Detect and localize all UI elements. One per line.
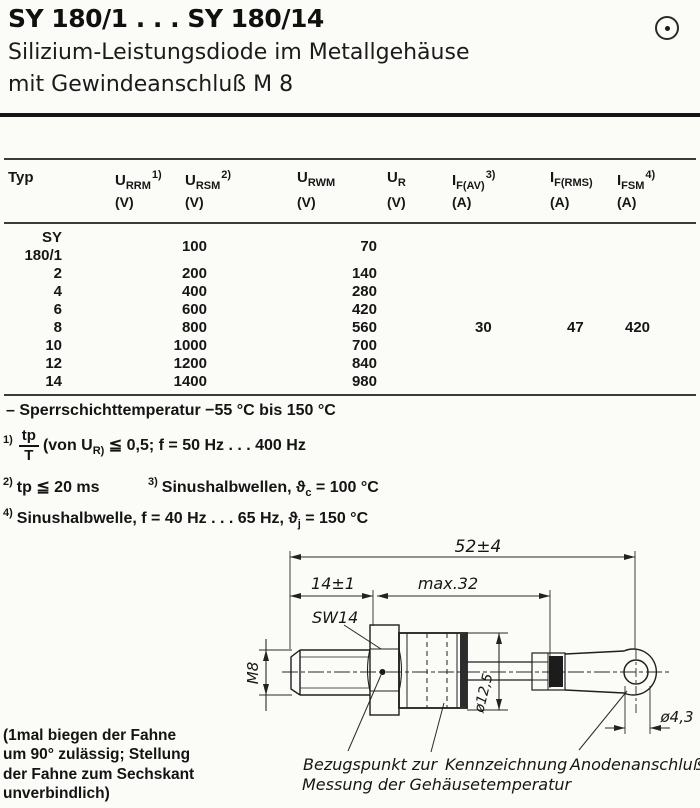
table-header: Typ URRM1) URSM2) URWM UR IF(AV)3) IF(RM… bbox=[4, 159, 696, 223]
cell-ifrms: 47 bbox=[520, 319, 595, 337]
cell-urwm: 280 bbox=[255, 283, 425, 301]
cell-typ: 14 bbox=[4, 373, 110, 395]
footnote-2: 2)tp ≦ 20 ms bbox=[3, 479, 100, 496]
subtitle-line-2: mit Gewindeanschluß M 8 bbox=[8, 72, 293, 97]
crimp-detail bbox=[532, 653, 548, 690]
column-header-typ: Typ bbox=[4, 159, 110, 194]
unit-cell: (A) bbox=[520, 194, 595, 223]
dia-hole-label: ø4,3 bbox=[659, 708, 693, 726]
cell-voltage: 1400 bbox=[110, 373, 255, 395]
caption-reference-point-line2: Messung der Gehäusetemperatur bbox=[302, 775, 573, 794]
cell-voltage: 600 bbox=[110, 301, 255, 319]
caption-reference-point-line1: Bezugspunkt zur bbox=[303, 755, 438, 774]
cell-ifrms bbox=[520, 283, 595, 301]
ratings-table: Typ URRM1) URSM2) URWM UR IF(AV)3) IF(RM… bbox=[4, 158, 696, 396]
cell-ifsm bbox=[595, 265, 696, 283]
cell-ifrms bbox=[520, 265, 595, 283]
unit-cell: (V) bbox=[350, 194, 425, 223]
case-detail-solid bbox=[407, 633, 457, 708]
cell-ifav bbox=[425, 301, 520, 319]
flag-note-line: um 90° zulässig; Stellung bbox=[3, 745, 194, 764]
table-row: 88005603047420 bbox=[4, 319, 696, 337]
reference-point-dot bbox=[380, 669, 386, 675]
cell-urwm: 840 bbox=[255, 355, 425, 373]
column-header-ifrms: IF(RMS) bbox=[520, 159, 595, 194]
unit-cell: (V) bbox=[110, 194, 175, 223]
cell-ifav bbox=[425, 223, 520, 265]
flag-note-line: der Fahne zum Sechskant bbox=[3, 765, 194, 784]
cell-ifrms bbox=[520, 337, 595, 355]
cell-ifsm bbox=[595, 355, 696, 373]
footnote-3: 3)Sinushalbwellen, ϑc = 100 °C bbox=[148, 476, 379, 499]
table-row: 121200840 bbox=[4, 355, 696, 373]
cell-ifav: 30 bbox=[425, 319, 520, 337]
package-outline-drawing: 52±4 14±1 max.32 SW14 M8 ø12,5 ø4,3 Bezu… bbox=[230, 535, 700, 808]
dim-thread-label: 14±1 bbox=[311, 574, 355, 593]
footnote-4: 4)Sinushalbwelle, f = 40 Hz . . . 65 Hz,… bbox=[3, 507, 368, 530]
cell-ifav bbox=[425, 373, 520, 395]
crimp-fill bbox=[549, 656, 563, 687]
cell-ifrms bbox=[520, 301, 595, 319]
unit-cell bbox=[4, 194, 110, 223]
cell-voltage: 200 bbox=[110, 265, 255, 283]
column-header-ur: UR bbox=[350, 159, 425, 194]
cell-ifav bbox=[425, 265, 520, 283]
cell-urwm: 70 bbox=[255, 223, 425, 265]
cell-ifrms bbox=[520, 355, 595, 373]
cell-ifsm bbox=[595, 373, 696, 395]
cell-voltage: 100 bbox=[110, 223, 255, 265]
footnote-1: 1)tpT(von UR) ≦ 0,5; f = 50 Hz . . . 400… bbox=[3, 428, 306, 464]
case-detail-dashed bbox=[427, 633, 447, 708]
cell-urwm: 140 bbox=[255, 265, 425, 283]
cell-ifrms bbox=[520, 223, 595, 265]
unit-cell: (A) bbox=[595, 194, 696, 223]
footnote-1-marker: 1) bbox=[3, 434, 13, 446]
flag-note-line: (1mal biegen der Fahne bbox=[3, 726, 194, 745]
cell-voltage: 1000 bbox=[110, 337, 255, 355]
datasheet-page: SY 180/1 . . . SY 180/14 Silizium-Leistu… bbox=[0, 0, 700, 808]
cell-ifsm bbox=[595, 223, 696, 265]
cell-urwm: 700 bbox=[255, 337, 425, 355]
cell-urwm: 980 bbox=[255, 373, 425, 395]
subtitle-line-1: Silizium-Leistungsdiode im Metallgehäuse bbox=[8, 40, 469, 65]
table-row: 6600420 bbox=[4, 301, 696, 319]
case-end-cap bbox=[460, 634, 467, 707]
flag-bending-note: (1mal biegen der Fahne um 90° zulässig; … bbox=[3, 726, 194, 803]
cell-ifsm bbox=[595, 301, 696, 319]
table-row: 141400980 bbox=[4, 373, 696, 395]
table-row: SY 180/110070 bbox=[4, 223, 696, 265]
cell-urwm: 560 bbox=[255, 319, 425, 337]
thread-lines bbox=[300, 657, 370, 688]
table-row: 101000700 bbox=[4, 337, 696, 355]
note-junction-temperature: – Sperrschichttemperatur −55 °C bis 150 … bbox=[6, 402, 336, 420]
wrench-size-label: SW14 bbox=[312, 608, 358, 627]
unit-cell: (V) bbox=[175, 194, 255, 223]
cell-ifsm: 420 bbox=[595, 319, 696, 337]
column-header-ursm: URSM2) bbox=[175, 159, 255, 194]
dim-case-label: max.32 bbox=[418, 574, 478, 593]
footnote-2-3-row: 2)tp ≦ 20 ms 3)Sinushalbwellen, ϑc = 100… bbox=[3, 476, 100, 497]
cell-ifsm bbox=[595, 337, 696, 355]
cell-ifav bbox=[425, 337, 520, 355]
column-header-ifsm: IFSM4) bbox=[595, 159, 696, 194]
footnote-1-text: (von UR) ≦ 0,5; f = 50 Hz . . . 400 Hz bbox=[43, 437, 306, 454]
table-row: 4400280 bbox=[4, 283, 696, 301]
page-title: SY 180/1 . . . SY 180/14 bbox=[8, 4, 324, 33]
cell-typ: 2 bbox=[4, 265, 110, 283]
thread-label: M8 bbox=[244, 662, 262, 685]
projection-symbol-dot bbox=[665, 26, 670, 31]
fraction-tp-over-T: tpT bbox=[19, 428, 39, 464]
caption-anode-connection: Anodenanschluß bbox=[569, 755, 700, 774]
cell-typ: 10 bbox=[4, 337, 110, 355]
cell-voltage: 1200 bbox=[110, 355, 255, 373]
dim-total-label: 52±4 bbox=[455, 537, 502, 557]
cell-voltage: 800 bbox=[110, 319, 255, 337]
cell-typ: 8 bbox=[4, 319, 110, 337]
column-header-urrm: URRM1) bbox=[110, 159, 175, 194]
table-row: 2200140 bbox=[4, 265, 696, 283]
caption-marking: Kennzeichnung bbox=[445, 755, 567, 774]
cell-ifav bbox=[425, 355, 520, 373]
unit-cell: (A) bbox=[425, 194, 520, 223]
table-body: SY 180/110070 2200140 4400280 6600420 88… bbox=[4, 223, 696, 395]
flag-note-line: unverbindlich) bbox=[3, 784, 194, 803]
cell-ifsm bbox=[595, 283, 696, 301]
cell-typ: 6 bbox=[4, 301, 110, 319]
cell-typ: 4 bbox=[4, 283, 110, 301]
cell-typ: 12 bbox=[4, 355, 110, 373]
dia-case-label: ø12,5 bbox=[471, 672, 496, 715]
header-divider bbox=[0, 113, 700, 117]
column-header-ifav: IF(AV)3) bbox=[425, 159, 520, 194]
projection-symbol-icon bbox=[655, 16, 679, 40]
cell-voltage: 400 bbox=[110, 283, 255, 301]
cell-ifav bbox=[425, 283, 520, 301]
column-header-urwm: URWM bbox=[255, 159, 350, 194]
unit-cell: (V) bbox=[255, 194, 350, 223]
cell-ifrms bbox=[520, 373, 595, 395]
cell-typ: SY 180/1 bbox=[4, 223, 110, 265]
cell-urwm: 420 bbox=[255, 301, 425, 319]
